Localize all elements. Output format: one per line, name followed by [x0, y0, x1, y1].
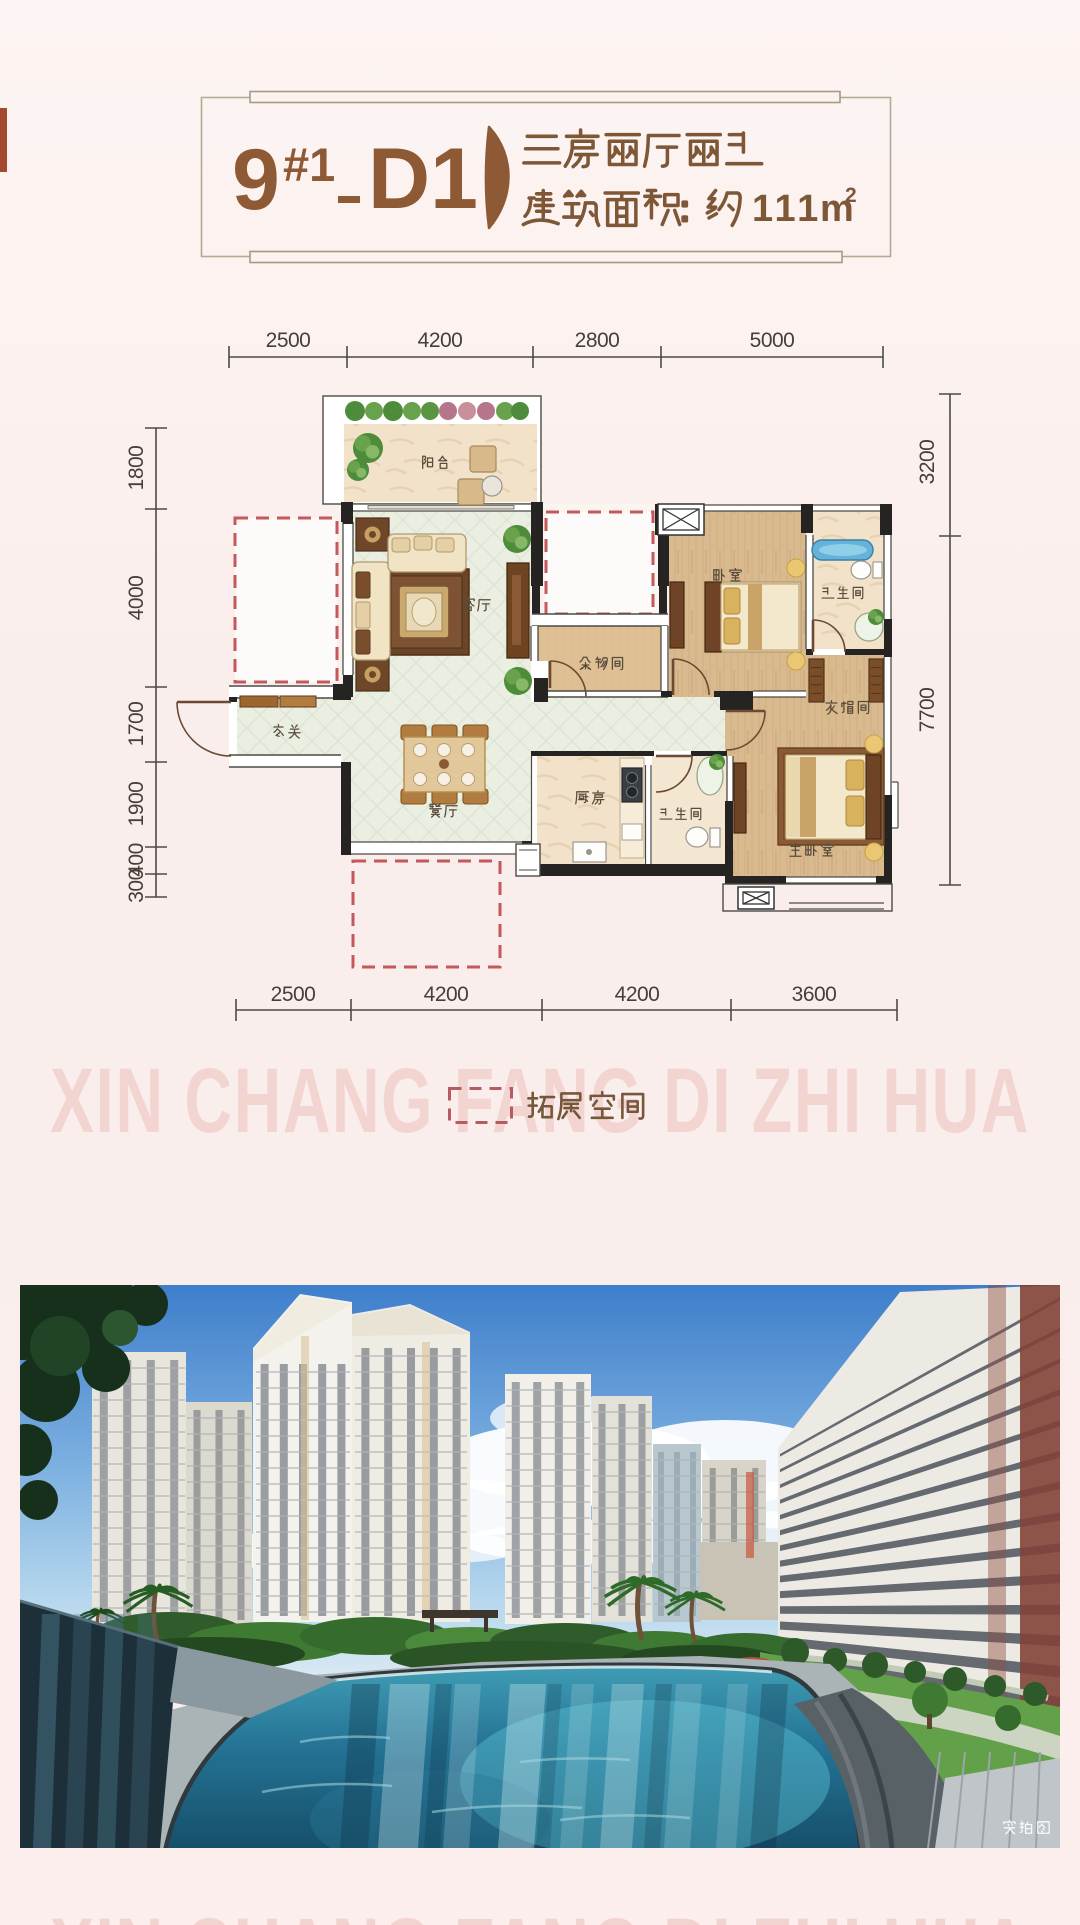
svg-text:1800: 1800 — [125, 446, 148, 491]
svg-text:1700: 1700 — [125, 702, 148, 747]
svg-text:XIN CHANG FANG DI ZHI HUA: XIN CHANG FANG DI ZHI HUA — [50, 1900, 1030, 1925]
svg-text:5000: 5000 — [750, 329, 795, 352]
svg-text:3200: 3200 — [916, 440, 939, 485]
svg-text:111: 111 — [752, 188, 822, 230]
svg-text:#1: #1 — [283, 138, 335, 191]
svg-text:4200: 4200 — [418, 329, 463, 352]
svg-text:XIN CHANG FANG DI ZHI HUA: XIN CHANG FANG DI ZHI HUA — [50, 1050, 1030, 1152]
svg-text:4000: 4000 — [125, 576, 148, 621]
svg-text:300: 300 — [125, 869, 148, 903]
svg-text:4200: 4200 — [424, 983, 469, 1006]
svg-text:2500: 2500 — [266, 329, 311, 352]
svg-text:D1: D1 — [368, 131, 478, 227]
svg-text:4200: 4200 — [615, 983, 660, 1006]
svg-text:2500: 2500 — [271, 983, 316, 1006]
svg-text:2: 2 — [845, 184, 857, 207]
svg-text:1900: 1900 — [125, 782, 148, 827]
svg-text:3600: 3600 — [792, 983, 837, 1006]
svg-text:7700: 7700 — [916, 688, 939, 733]
svg-text:9: 9 — [232, 132, 280, 228]
svg-text:2800: 2800 — [575, 329, 620, 352]
